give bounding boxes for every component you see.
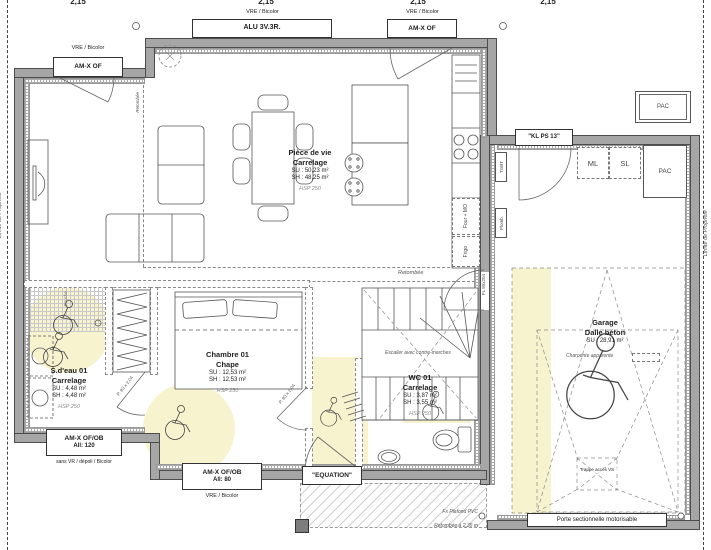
wall-hatch xyxy=(155,48,487,54)
electrical-panel-label: TGBT xyxy=(499,161,504,173)
property-line-left xyxy=(7,0,8,550)
window-label: AM-X OF/OB xyxy=(203,469,242,476)
room-name: Garage xyxy=(565,318,645,328)
room-hsp: HSP 250 xyxy=(30,404,108,411)
retombee-label: Retombée xyxy=(396,270,425,276)
retombee-line xyxy=(143,267,480,268)
porch-post xyxy=(295,519,309,533)
room-label-garage: Garage Dalle béton SU : 28,91 m² xyxy=(565,318,645,345)
room-sh: SH : 12,53 m² xyxy=(185,377,270,385)
room-su: SU : 3,87 m² xyxy=(385,393,455,401)
wall-segment xyxy=(14,68,24,443)
room-floor: Carrelage xyxy=(385,383,455,393)
wall-segment xyxy=(690,135,700,530)
porch-slab xyxy=(300,483,487,528)
oven-microwave: Four + MO xyxy=(452,198,480,235)
partition xyxy=(150,287,158,375)
room-su: SU : 4,48 m² xyxy=(30,386,108,394)
room-hsp: HSP 250 xyxy=(268,186,352,193)
window-top-middle: ALU 3V.3R. xyxy=(192,19,332,38)
window-note: VRE / Bicolor xyxy=(385,9,460,15)
shower-label: Douche xyxy=(64,291,69,307)
crawlspace-hatch-label: Trappe accès VS xyxy=(575,468,619,473)
electrical-panel: TGBT xyxy=(495,152,507,182)
window-bottom-left: AM-X OF/OB All: 120 xyxy=(46,429,122,456)
partition xyxy=(24,280,310,288)
wall-hatch xyxy=(481,48,487,138)
room-sh: SH : 48,25 m² xyxy=(268,175,352,183)
dimension: 2,15 xyxy=(58,0,98,7)
room-name: S.d'eau 01 xyxy=(30,366,108,376)
room-name: WC 01 xyxy=(385,373,455,383)
washing-machine: ML xyxy=(577,147,609,179)
window-note: VRE / Bicolor xyxy=(190,493,254,499)
sofa xyxy=(106,126,204,262)
room-su: SU : 28,91 m² xyxy=(565,338,645,346)
zone-garage xyxy=(512,268,551,514)
room-label-bedroom: Chambre 01 Chape SU : 12,53 m² SH : 12,5… xyxy=(185,350,270,395)
window-note: VRE / Bicolor xyxy=(48,45,128,51)
wall-segment xyxy=(480,135,490,485)
fridge-label: Frigo xyxy=(463,246,469,257)
window-top-right: AM-X OF xyxy=(387,19,457,38)
room-label-wc: WC 01 Carrelage SU : 3,87 m² SH : 3,55 m… xyxy=(385,373,455,418)
hand-basin xyxy=(378,450,400,464)
dimension: 2,15 xyxy=(528,0,568,7)
room-hsp: HSP 250 xyxy=(385,411,455,418)
room-floor: Carrelage xyxy=(268,158,352,168)
room-name: Chambre 01 xyxy=(185,350,270,360)
partition xyxy=(355,358,363,472)
heat-pump-outside-label: PAC xyxy=(639,94,687,120)
retombee-vertical-label: Retombée xyxy=(136,92,141,113)
plumbing-manifold: Plomb. xyxy=(495,208,507,238)
roof-legend-chip xyxy=(632,353,660,362)
room-floor: Carrelage xyxy=(30,376,108,386)
wardrobe xyxy=(113,290,150,372)
dryer: SL xyxy=(609,147,641,179)
property-line-right xyxy=(703,0,704,550)
dropped-ceiling-label: Retombée à 2,35 m xyxy=(406,524,478,530)
entry-door-label: "EQUATION" xyxy=(302,466,362,485)
dimension: 2,15 xyxy=(398,0,438,7)
stairs-label: Escalier avec contre-marches xyxy=(366,351,470,357)
window-sill-height: All: 80 xyxy=(213,477,231,484)
partition xyxy=(105,287,113,375)
room-label-living: Pièce de vie Carrelage SU : 50,23 m² SH … xyxy=(268,148,352,193)
wall-hatch xyxy=(24,78,145,84)
bathroom-door-label: P. 83 x 2,04 xyxy=(117,376,135,398)
property-label-left: Limite de Propriété xyxy=(0,192,3,238)
heat-pump-inside: PAC xyxy=(643,145,687,198)
room-hsp: HSP 250 xyxy=(185,388,270,395)
oven-microwave-label: Four + MO xyxy=(463,204,469,228)
plumbing-label: Plomb. xyxy=(499,216,504,230)
window-label: AM-X OF/OB xyxy=(65,435,104,442)
bedroom-door-label: P. 83 x 2,04 xyxy=(279,384,297,406)
wall-hatch xyxy=(490,145,495,485)
property-label-right: Limite de Propriété xyxy=(703,210,709,256)
tv-cabinet xyxy=(28,140,48,224)
fridge: Frigo xyxy=(452,236,480,267)
kitchen-island xyxy=(345,85,408,205)
toilet xyxy=(433,427,471,452)
room-floor: Dalle béton xyxy=(565,328,645,338)
heat-pump-outside: PAC xyxy=(635,91,691,123)
floor-plan: Limite de Propriété Limite de Propriété … xyxy=(0,0,711,550)
wall-segment xyxy=(487,38,497,145)
window-sill-height: All: 120 xyxy=(73,443,94,450)
retombee-line xyxy=(143,80,144,267)
partition xyxy=(305,287,313,389)
room-label-bathroom: S.d'eau 01 Carrelage SU : 4,48 m² SH : 4… xyxy=(30,366,108,411)
wall-segment xyxy=(145,38,497,48)
room-name: Pièce de vie xyxy=(268,148,352,158)
wall-hatch xyxy=(474,145,480,470)
room-floor: Chape xyxy=(185,360,270,370)
window-bottom-middle: AM-X OF/OB All: 80 xyxy=(182,463,262,490)
garage-service-door-label: "KL PS 13" xyxy=(515,129,573,146)
garage-link-door-label: PL 80x204 xyxy=(482,274,487,295)
ceiling-label: Fx Plafond PVC xyxy=(420,510,478,516)
sectional-door-label: Porte sectionnelle motorisable xyxy=(527,513,667,527)
dimension: 2,15 xyxy=(246,0,286,7)
wall-hatch xyxy=(685,145,690,515)
room-sh: SH : 4,48 m² xyxy=(30,393,108,401)
room-su: SU : 12,53 m² xyxy=(185,370,270,378)
room-su: SU : 50,23 m² xyxy=(268,168,352,176)
garage-roof-note: Charpente apparente xyxy=(566,354,613,360)
window-note: VRE / Bicolor xyxy=(225,9,300,15)
room-sh: SH : 3,55 m² xyxy=(385,400,455,408)
window-note: sans VR / dépoli / Bicolor xyxy=(28,460,140,466)
window-top-left: AM-X OF xyxy=(53,57,123,77)
